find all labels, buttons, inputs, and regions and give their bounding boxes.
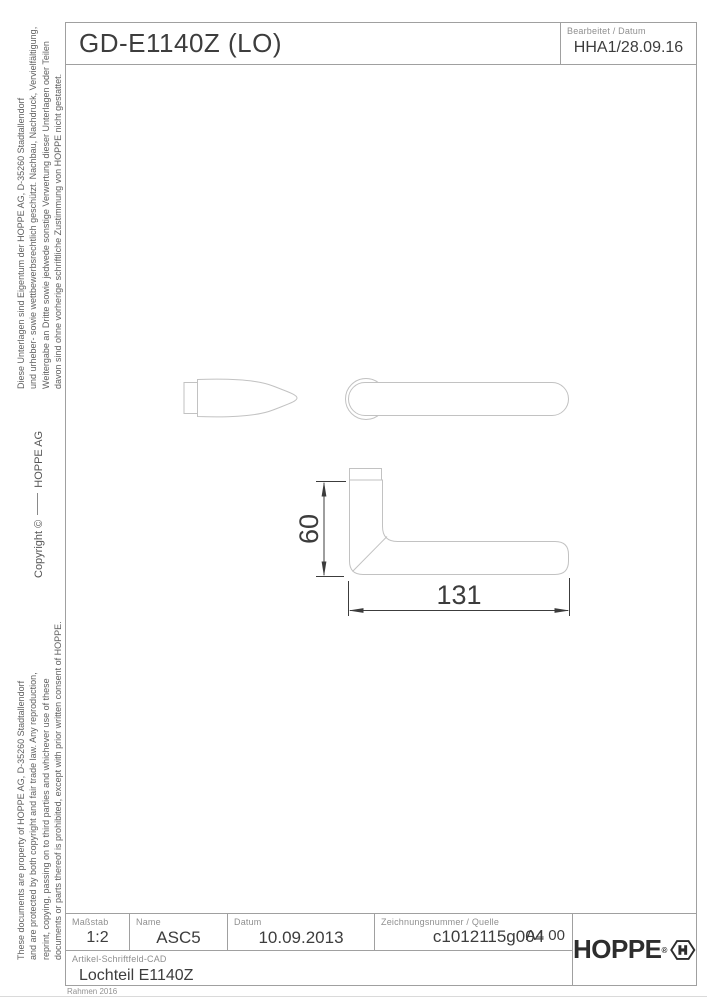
scale-label: Maßstab xyxy=(66,914,129,927)
brand-cell: HOPPE® xyxy=(573,913,696,985)
date-label: Datum xyxy=(228,914,374,927)
drawing-number-cell: Zeichnungsnummer / Quelle c1012115g004 A… xyxy=(375,913,573,950)
sheet-frame xyxy=(65,22,697,986)
edited-date-value: HHA1/28.09.16 xyxy=(561,39,696,57)
page-bottom-edge xyxy=(0,996,707,997)
drawing-number-label: Zeichnungsnummer / Quelle xyxy=(375,914,572,927)
date-value: 10.09.2013 xyxy=(228,928,374,948)
edited-date-cell: Bearbeitet / Datum HHA1/28.09.16 xyxy=(560,23,696,64)
article-value: Lochteil E1140Z xyxy=(79,967,572,985)
drawing-sheet: Diese Unterlagen sind Eigentum der HOPPE… xyxy=(0,0,707,1000)
scale-value: 1:2 xyxy=(66,929,129,947)
article-label: Artikel-Schriftfeld-CAD xyxy=(66,951,572,964)
registered-mark: ® xyxy=(662,946,668,955)
name-label: Name xyxy=(130,914,227,927)
name-cell: Name ASC5 xyxy=(130,913,228,950)
name-value: ASC5 xyxy=(130,928,227,948)
drawing-number-row: c1012115g004 A4 00 xyxy=(375,927,572,949)
hoppe-hexagon-icon xyxy=(670,935,696,965)
hoppe-logo-text: HOPPE xyxy=(573,934,662,965)
frame-version-note: Rahmen 2016 xyxy=(67,987,117,996)
date-cell: Datum 10.09.2013 xyxy=(228,913,375,950)
edited-date-label: Bearbeitet / Datum xyxy=(561,23,696,36)
scale-cell: Maßstab 1:2 xyxy=(66,913,130,950)
page-title: GD-E1140Z (LO) xyxy=(79,28,282,59)
article-cell: Artikel-Schriftfeld-CAD Lochteil E1140Z xyxy=(66,950,573,985)
sheet-format-value: A4 00 xyxy=(526,927,565,944)
